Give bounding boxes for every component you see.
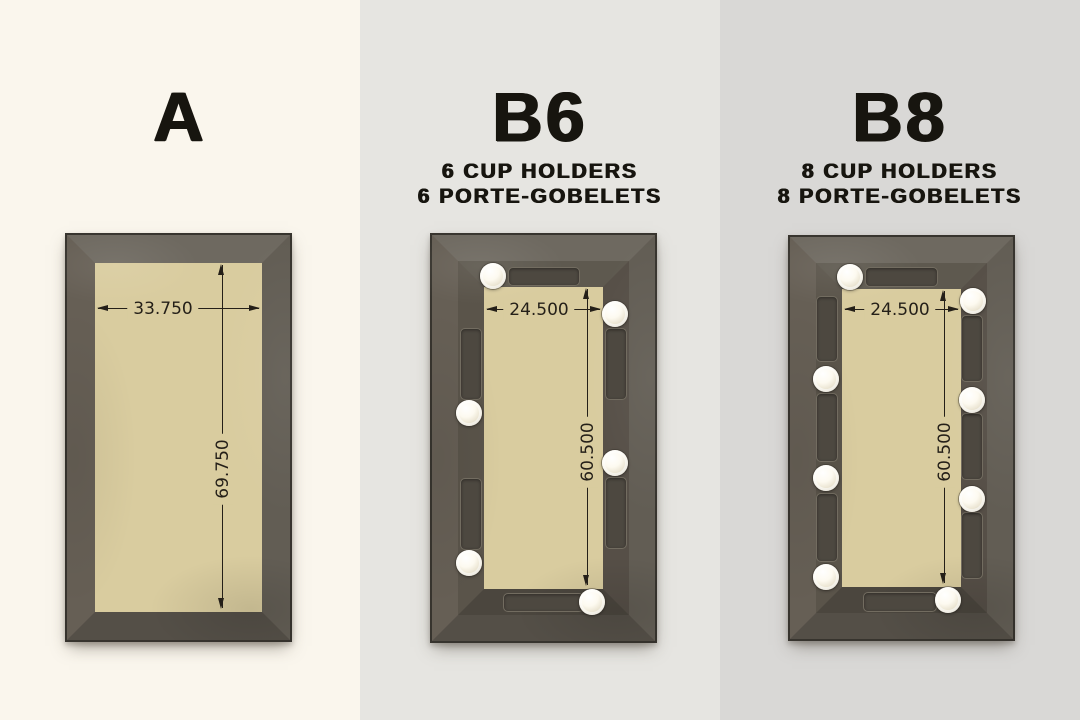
height-dimension: 60.500 [587, 289, 588, 585]
chip-tray [961, 413, 983, 480]
option-b8-subtitle: 8 CUP HOLDERS 8 PORTE-GOBELETS [720, 159, 1080, 209]
chip-tray [863, 592, 937, 612]
subtitle-english: 6 CUP HOLDERS [360, 159, 720, 184]
table-top-b8: 24.500 60.500 [788, 235, 1015, 641]
chip-tray [816, 393, 838, 462]
cup-holder [480, 263, 506, 289]
height-dimension: 69.750 [222, 265, 223, 608]
option-b6-subtitle: 6 CUP HOLDERS 6 PORTE-GOBELETS [360, 159, 720, 209]
arrow-up-icon [218, 264, 224, 275]
table-top-a: 33.750 69.750 [65, 233, 292, 642]
arrow-left-icon [844, 306, 855, 312]
chip-tray [865, 267, 938, 287]
option-b8-title: B8 [720, 82, 1080, 152]
width-dimension-label: 24.500 [503, 300, 574, 320]
width-dimension: 24.500 [845, 309, 958, 310]
arrow-left-icon [486, 306, 497, 312]
felt-surface: 33.750 69.750 [95, 263, 262, 612]
wood-frame: 33.750 69.750 [67, 235, 290, 640]
chip-tray [816, 296, 838, 362]
height-dimension: 60.500 [944, 291, 945, 583]
subtitle-french: 8 PORTE-GOBELETS [720, 184, 1080, 209]
chip-tray [460, 478, 482, 550]
panel-option-b8: B8 8 CUP HOLDERS 8 PORTE-GOBELETS 24.500 [720, 0, 1080, 720]
width-dimension: 24.500 [487, 309, 600, 310]
arrow-down-icon [940, 573, 946, 584]
cup-holder [456, 550, 482, 576]
height-dimension-label: 60.500 [935, 416, 955, 487]
arrow-right-icon [590, 306, 601, 312]
cup-holder [602, 301, 628, 327]
arrow-down-icon [218, 598, 224, 609]
table-top-b6: 24.500 60.500 [430, 233, 657, 643]
arrow-left-icon [97, 305, 108, 311]
chip-tray [605, 477, 627, 549]
chip-tray [503, 593, 584, 612]
arrow-down-icon [583, 575, 589, 586]
width-dimension: 33.750 [98, 308, 259, 309]
cup-holder [960, 288, 986, 314]
chip-tray [460, 328, 482, 400]
cup-holder [959, 486, 985, 512]
cup-holder [959, 387, 985, 413]
felt-surface: 24.500 60.500 [842, 289, 961, 587]
cup-holder [935, 587, 961, 613]
cup-holder [456, 400, 482, 426]
arrow-up-icon [583, 288, 589, 299]
option-b6-title: B6 [360, 82, 720, 152]
width-dimension-label: 33.750 [127, 299, 198, 319]
cup-holder [813, 465, 839, 491]
height-dimension-label: 69.750 [213, 433, 233, 504]
chip-tray [816, 493, 838, 562]
chip-tray [961, 512, 983, 579]
option-a-title: A [0, 82, 360, 152]
cup-holder [602, 450, 628, 476]
panel-option-a: A 33.750 69.750 [0, 0, 360, 720]
comparison-diagram: A 33.750 69.750 B6 [0, 0, 1080, 720]
cup-holder [579, 589, 605, 615]
chip-tray [961, 315, 983, 382]
panel-option-b6: B6 6 CUP HOLDERS 6 PORTE-GOBELETS 24.500 [360, 0, 720, 720]
arrow-right-icon [948, 306, 959, 312]
chip-tray [508, 267, 580, 286]
height-dimension-label: 60.500 [578, 416, 598, 487]
arrow-right-icon [249, 305, 260, 311]
chip-tray [605, 328, 627, 400]
cup-holder [813, 366, 839, 392]
subtitle-french: 6 PORTE-GOBELETS [360, 184, 720, 209]
wood-frame: 24.500 60.500 [432, 235, 655, 641]
arrow-up-icon [940, 290, 946, 301]
cup-holder [837, 264, 863, 290]
width-dimension-label: 24.500 [864, 300, 935, 320]
felt-surface: 24.500 60.500 [484, 287, 603, 589]
subtitle-english: 8 CUP HOLDERS [720, 159, 1080, 184]
cup-holder [813, 564, 839, 590]
